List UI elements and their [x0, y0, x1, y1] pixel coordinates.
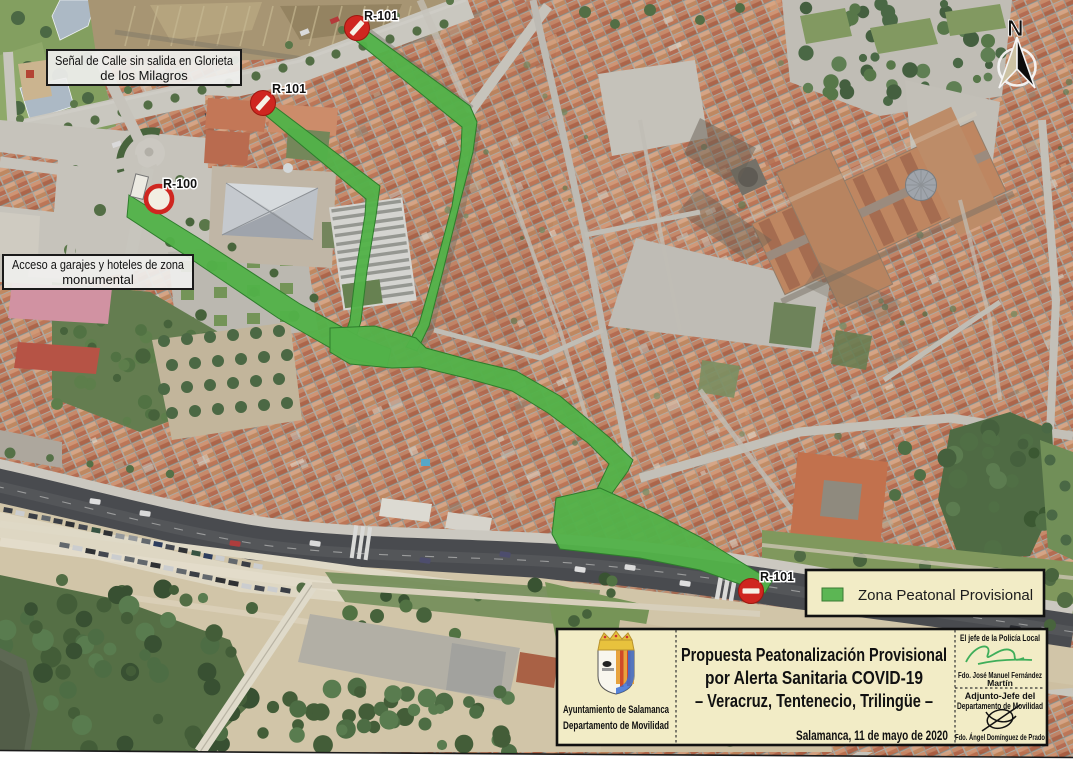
svg-text:Acceso a garajes y hoteles de: Acceso a garajes y hoteles de zona [12, 257, 185, 272]
svg-text:Ayuntamiento de Salamanca: Ayuntamiento de Salamanca [563, 704, 669, 716]
svg-text:Propuesta Peatonalización Prov: Propuesta Peatonalización Provisional [681, 645, 947, 665]
svg-text:Señal de Calle sin salida en G: Señal de Calle sin salida en Glorieta [55, 53, 234, 68]
svg-text:Fdo. Ángel Domínguez de Prado: Fdo. Ángel Domínguez de Prado [955, 731, 1045, 742]
svg-text:Salamanca, 11 de mayo de 2020: Salamanca, 11 de mayo de 2020 [796, 727, 948, 743]
svg-text:R-100: R-100 [163, 177, 197, 191]
svg-text:Adjunto-Jefe del: Adjunto-Jefe del [965, 691, 1036, 701]
svg-text:El jefe de la Policía Local: El jefe de la Policía Local [960, 633, 1040, 643]
svg-text:N: N [1007, 15, 1024, 41]
svg-text:R-101: R-101 [272, 82, 306, 96]
svg-text:monumental: monumental [62, 272, 134, 287]
svg-text:R-101: R-101 [760, 570, 794, 584]
svg-text:de los Milagros: de los Milagros [100, 68, 188, 83]
svg-text:Zona Peatonal Provisional: Zona Peatonal Provisional [858, 587, 1033, 604]
svg-text:Departamento de Movilidad: Departamento de Movilidad [563, 720, 669, 732]
svg-text:R-101: R-101 [364, 9, 398, 23]
svg-text:Martín: Martín [987, 678, 1013, 688]
svg-text:– Veracruz, Tentenecio, Trilin: – Veracruz, Tentenecio, Trilingüe – [695, 691, 933, 711]
svg-text:por Alerta Sanitaria COVID-19: por Alerta Sanitaria COVID-19 [705, 668, 923, 688]
